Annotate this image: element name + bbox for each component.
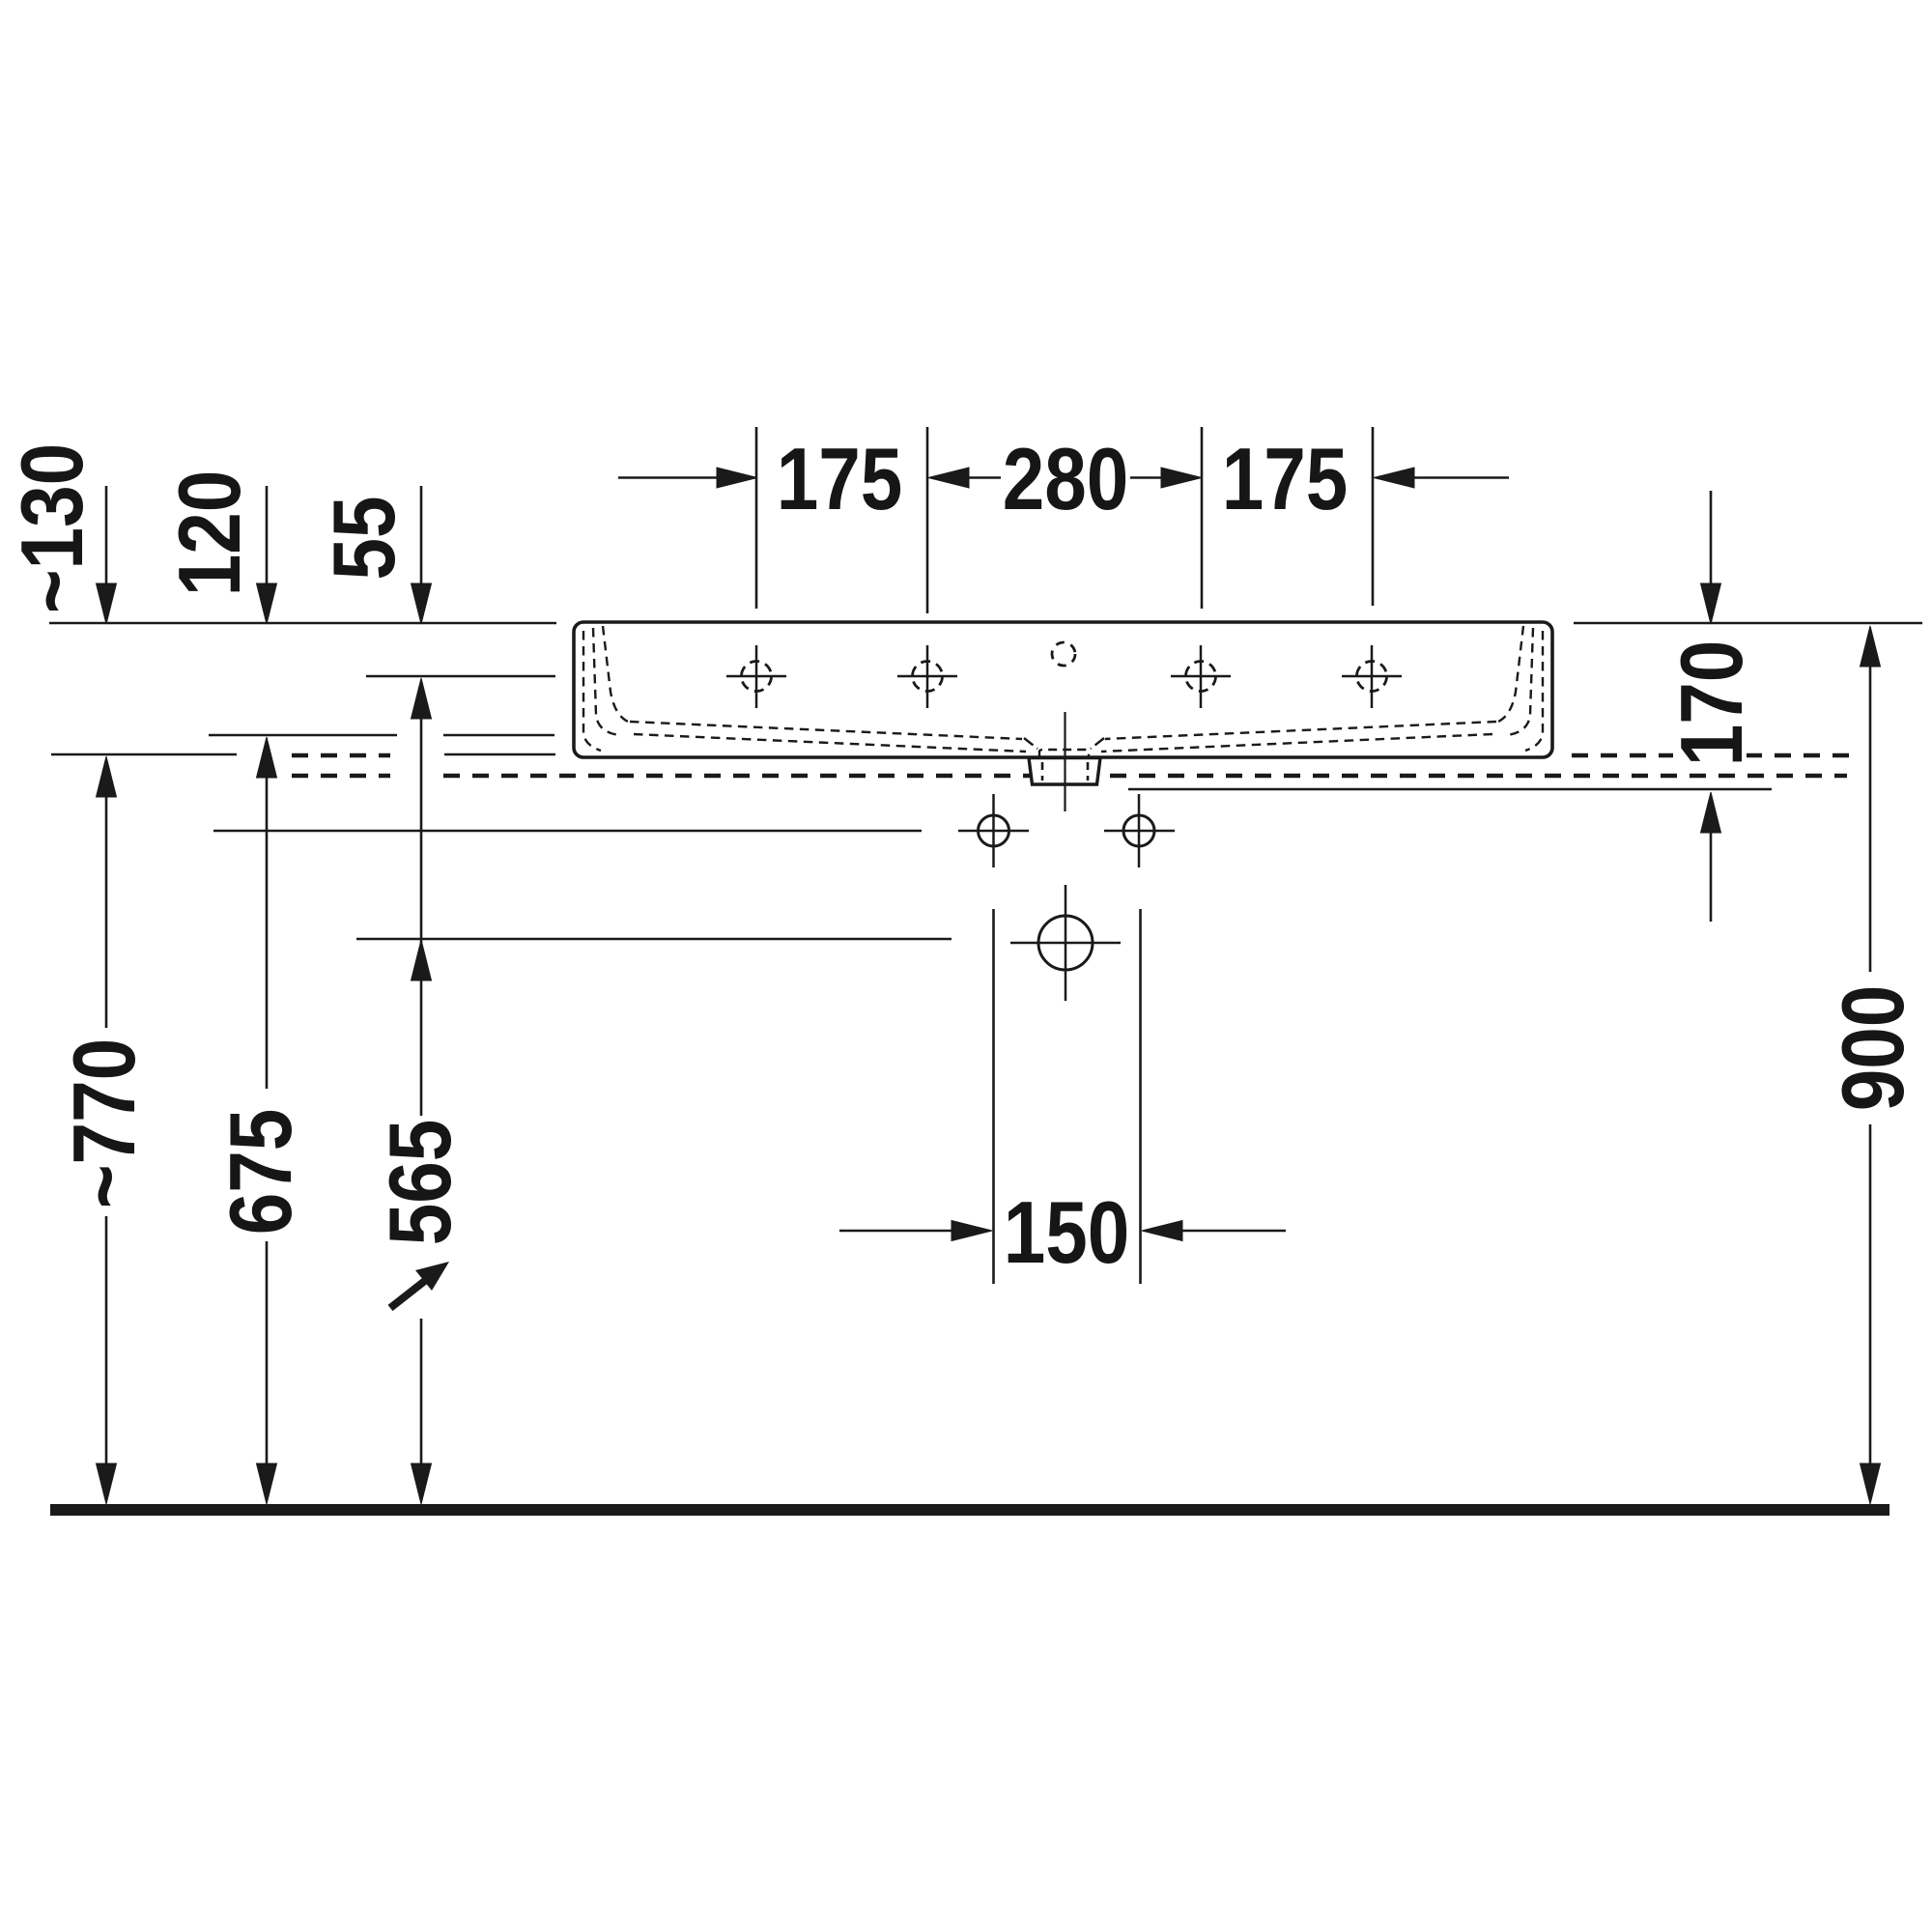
svg-text:~770: ~770 <box>54 1038 153 1208</box>
svg-text:170: 170 <box>1662 640 1760 767</box>
svg-text:565: 565 <box>370 1120 469 1246</box>
svg-text:900: 900 <box>1823 985 1921 1112</box>
svg-text:675: 675 <box>211 1109 309 1236</box>
svg-text:55: 55 <box>314 496 412 580</box>
svg-text:175: 175 <box>777 429 903 527</box>
svg-text:~130: ~130 <box>2 443 100 613</box>
svg-text:175: 175 <box>1222 429 1349 527</box>
svg-text:280: 280 <box>1003 429 1129 527</box>
svg-text:150: 150 <box>1004 1182 1130 1281</box>
svg-text:120: 120 <box>159 470 258 597</box>
